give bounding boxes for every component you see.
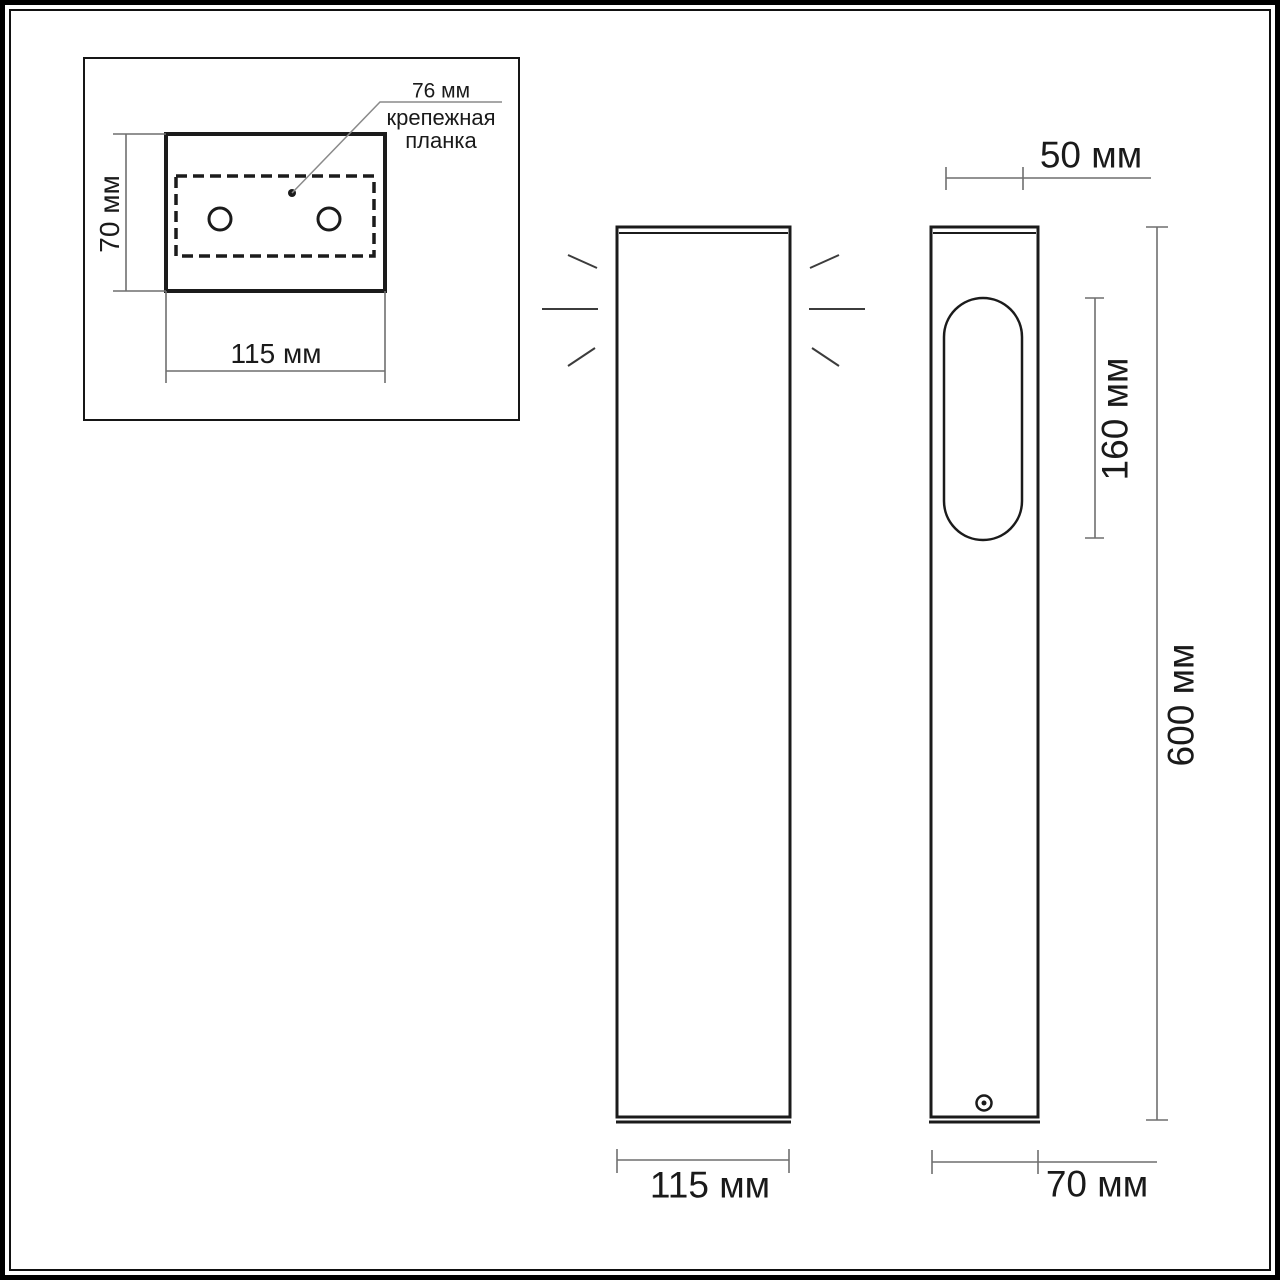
plate-name-line1: крепежная (386, 106, 495, 129)
side-depth-label: 70 мм (1046, 1166, 1148, 1203)
drawing-svg (0, 0, 1280, 1280)
drawing-canvas: 70 мм 115 мм 76 мм крепежная планка 115 … (0, 0, 1280, 1280)
plate-name-line2: планка (386, 129, 495, 152)
front-width-label: 115 мм (650, 1167, 770, 1204)
light-ray-left-top (568, 255, 597, 268)
screw-hole-right (318, 208, 340, 230)
side-total-height-label: 600 мм (1163, 644, 1200, 767)
light-window-outline (944, 298, 1022, 540)
front-body-outline (617, 227, 790, 1117)
plate-name-label: крепежная планка (386, 106, 495, 152)
plate-dimension-label: 76 мм (412, 81, 470, 102)
side-window-height-label: 160 мм (1097, 358, 1134, 481)
light-ray-right-bottom (812, 348, 839, 366)
inset-width-label: 115 мм (231, 340, 322, 368)
side-top-width-label: 50 мм (1040, 137, 1142, 174)
screw-hole-left (209, 208, 231, 230)
front-view (542, 227, 865, 1173)
light-ray-left-bottom (568, 348, 595, 366)
inset-height-label: 70 мм (96, 175, 124, 252)
side-view (929, 167, 1168, 1174)
mounting-base-outline (166, 134, 385, 291)
light-ray-right-top (810, 255, 839, 268)
screw-center-dot (982, 1101, 987, 1106)
